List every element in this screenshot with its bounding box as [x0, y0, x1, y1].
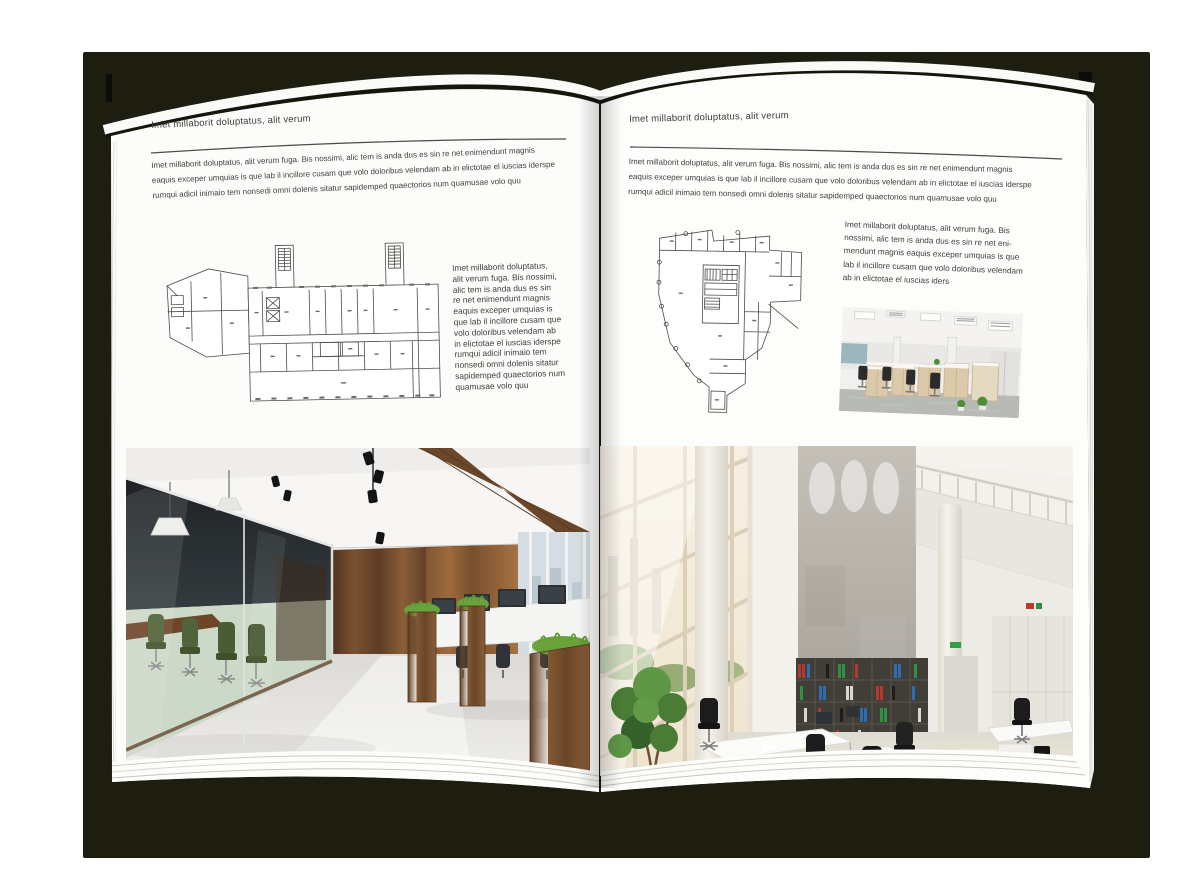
- right-office-photo: [600, 446, 1073, 776]
- left-office-photo: [126, 448, 590, 773]
- right-floor-plan: [647, 222, 810, 417]
- exit-sign: [950, 642, 961, 648]
- magazine-spread-mockup: Imet millaborit doluptatus, alit verum I…: [0, 0, 1200, 891]
- building-outline: [657, 229, 802, 413]
- right-plan-caption: Imet millaborit doluptatus, alit verum f…: [842, 218, 1039, 291]
- main-block: [248, 284, 440, 401]
- stair-tower-a: [275, 245, 294, 287]
- left-wing: [167, 268, 250, 358]
- left-plan-caption: Imet millaborit doluptatus, alit verum f…: [452, 259, 588, 392]
- stair-tower-b: [385, 243, 404, 285]
- plant-pot: [638, 766, 678, 776]
- left-floor-plan: [158, 232, 445, 408]
- small-office-photo: [839, 307, 1023, 418]
- monitor: [816, 712, 832, 724]
- waste-bin: [1034, 746, 1050, 766]
- safety-sign: [1026, 603, 1034, 609]
- right-page-intro: Imet millaborit doluptatus, alit verum f…: [628, 154, 1032, 207]
- glass-partition: [841, 343, 868, 364]
- page-curl-shadow-left: [106, 74, 112, 102]
